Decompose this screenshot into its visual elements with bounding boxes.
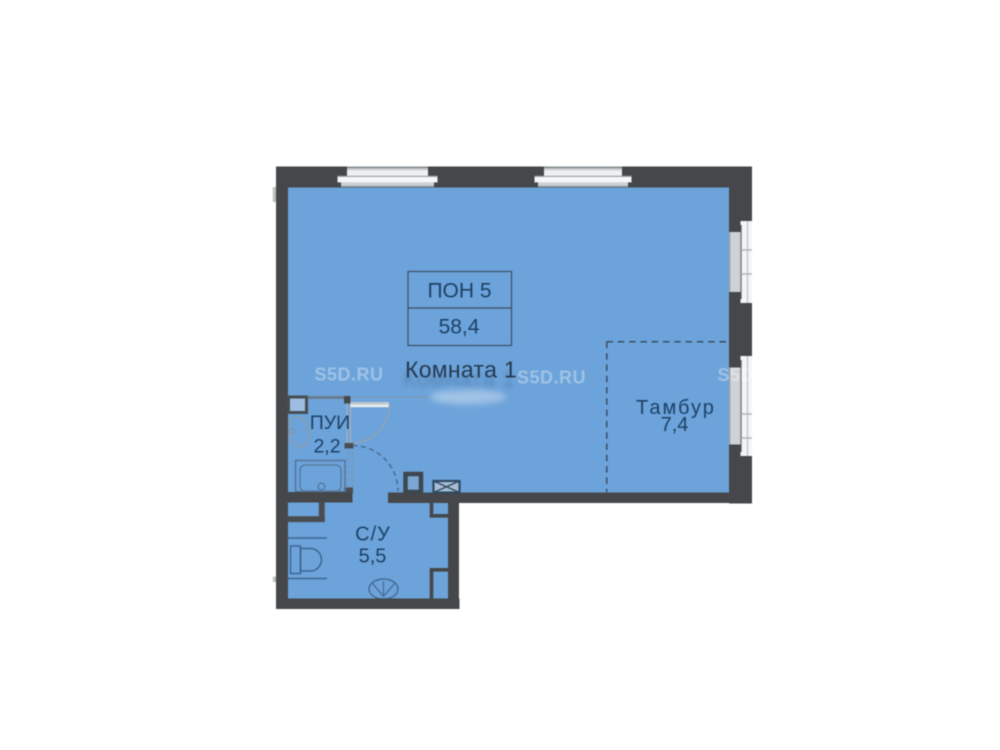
svg-text:ПУИ: ПУИ	[310, 412, 350, 434]
svg-text:5,5: 5,5	[359, 546, 387, 568]
svg-text:S5D.RU: S5D.RU	[314, 365, 383, 385]
svg-text:Комната 1: Комната 1	[403, 366, 515, 392]
svg-text:58,4: 58,4	[439, 316, 480, 339]
svg-text:7,4: 7,4	[661, 414, 689, 436]
svg-text:S5D.RU: S5D.RU	[517, 368, 586, 388]
svg-text:S5D.RU: S5D.RU	[717, 365, 786, 385]
svg-text:ПОН 5: ПОН 5	[427, 280, 491, 303]
svg-text:С/У: С/У	[355, 524, 391, 546]
svg-text:2,2: 2,2	[313, 436, 340, 458]
